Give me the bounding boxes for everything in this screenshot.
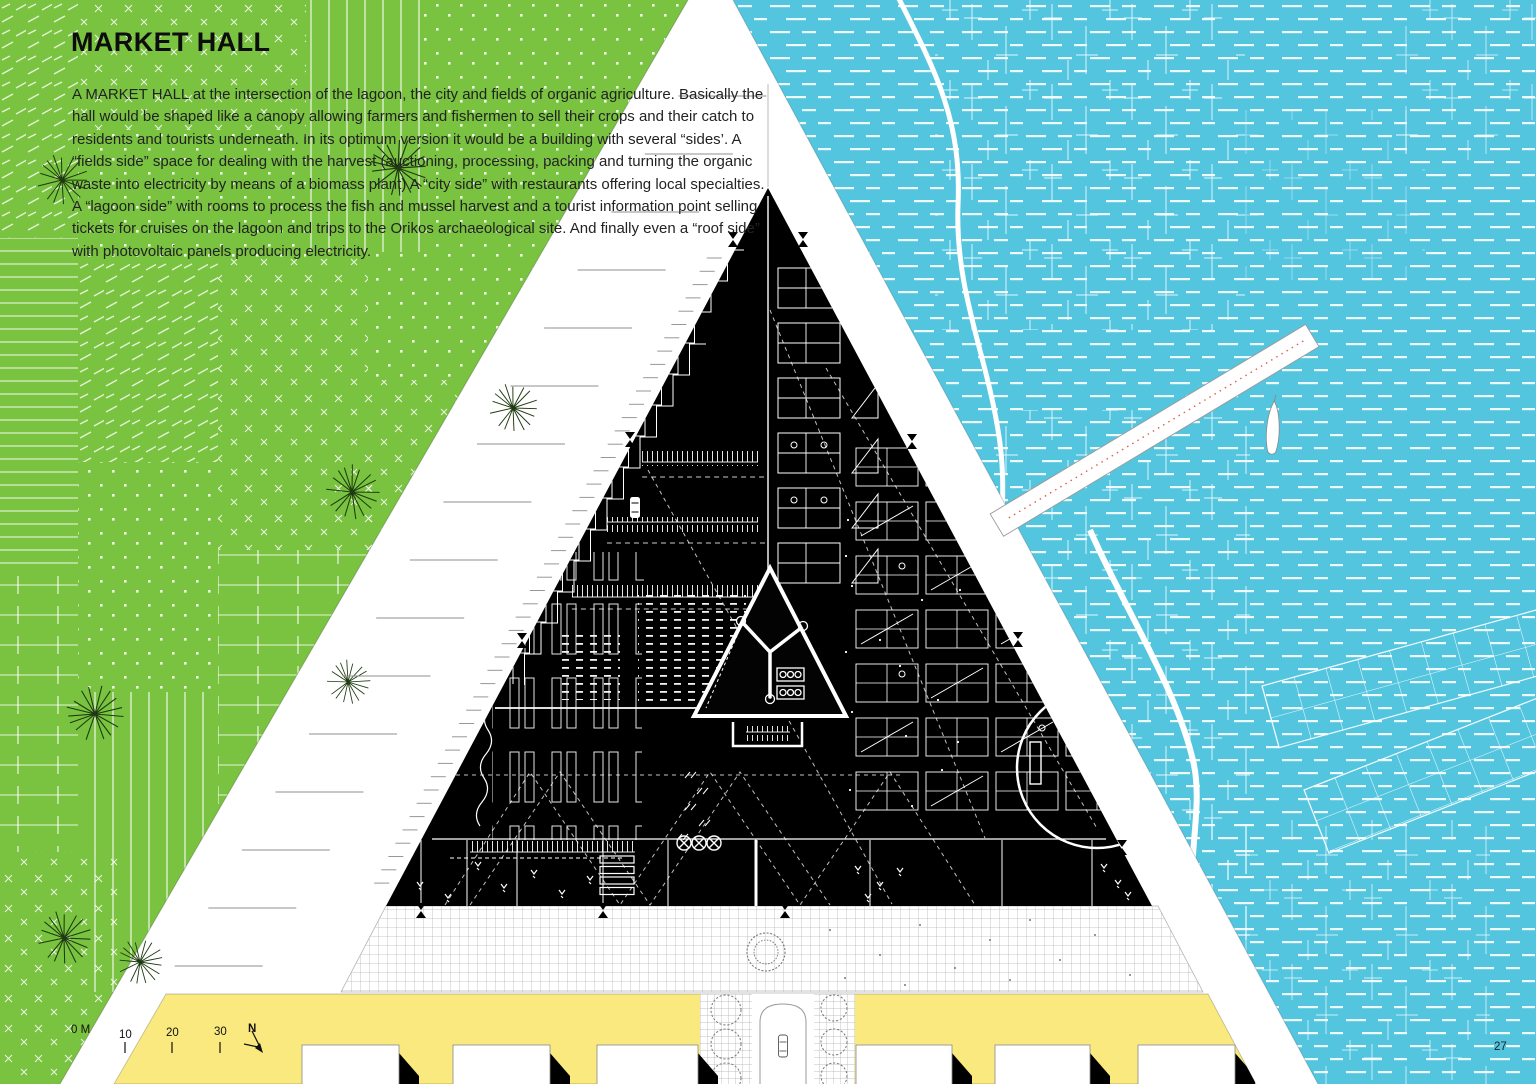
scale-label-10: 10 [119,1029,132,1041]
tree-icon [481,375,546,441]
scale-label-20: 20 [166,1027,179,1039]
presentation-page: MARKET HALL A MARKET HALL at the interse… [0,0,1536,1084]
project-description: A MARKET HALL at the intersection of the… [72,84,772,263]
scale-label-30: 30 [214,1026,227,1038]
street-tree-band [814,994,855,1084]
city-strip [114,994,1256,1084]
van-icon [630,497,640,518]
entrance-arrow-icon [907,434,917,449]
tree-icon [323,656,374,708]
city-road [700,994,855,1084]
car-icon [779,1035,788,1057]
page-number: 27 [1494,1041,1507,1053]
scale-label-0: 0 M [71,1024,90,1036]
entrance-arrow-icon [798,232,808,247]
pavement-grid-strip [341,906,1203,992]
page-title: MARKET HALL [71,27,270,58]
vertical-stall-rows [492,552,644,840]
entrance-arrow-icon [1013,632,1023,647]
north-label: N [248,1023,256,1035]
